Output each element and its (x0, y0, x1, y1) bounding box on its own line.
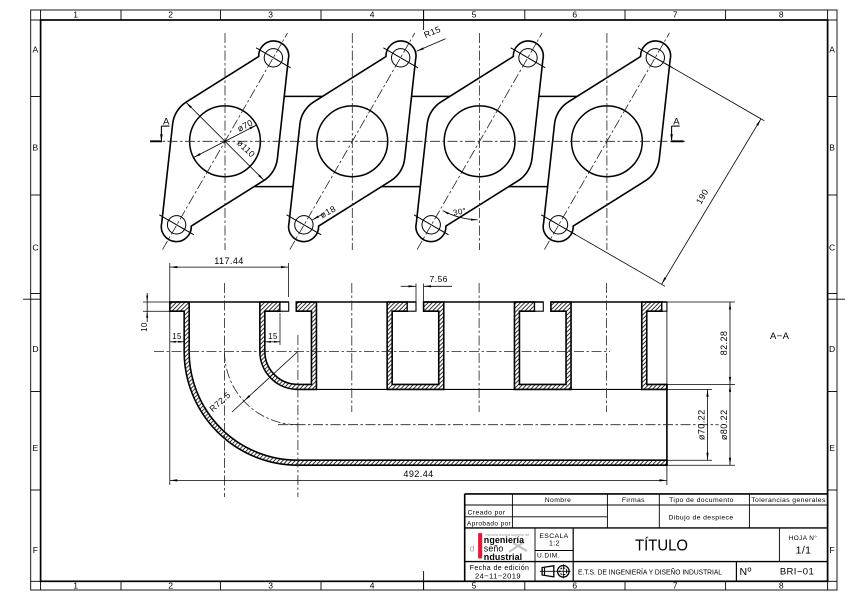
svg-text:117.44: 117.44 (214, 256, 244, 266)
svg-text:F: F (830, 545, 836, 555)
svg-text:1:2: 1:2 (549, 541, 560, 548)
svg-text:82.28: 82.28 (719, 331, 729, 356)
svg-text:ø80.22: ø80.22 (719, 409, 729, 440)
svg-text:8: 8 (779, 580, 784, 590)
svg-text:Creado por: Creado por (468, 509, 506, 516)
svg-text:B: B (33, 143, 39, 153)
svg-text:D: D (32, 344, 39, 354)
svg-text:5: 5 (472, 10, 477, 20)
svg-text:8: 8 (779, 10, 784, 20)
svg-text:492.44: 492.44 (403, 469, 433, 479)
svg-text:U.DIM.: U.DIM. (537, 553, 560, 560)
svg-text:A: A (673, 116, 680, 127)
svg-text:TÍTULO: TÍTULO (635, 538, 688, 555)
svg-text:C: C (829, 243, 836, 253)
svg-text:A: A (829, 45, 835, 55)
svg-text:C: C (32, 243, 39, 253)
svg-text:ø70.22: ø70.22 (696, 409, 706, 440)
svg-text:BRI−01: BRI−01 (780, 567, 814, 578)
svg-text:6: 6 (572, 10, 577, 20)
svg-text:6: 6 (572, 580, 577, 590)
svg-text:d: d (470, 544, 475, 554)
svg-text:15: 15 (268, 332, 278, 341)
svg-text:A: A (163, 116, 170, 127)
svg-text:2: 2 (168, 580, 173, 590)
svg-text:7: 7 (673, 10, 678, 20)
svg-text:E: E (829, 443, 835, 453)
svg-text:1/1: 1/1 (796, 545, 812, 557)
svg-text:Firmas: Firmas (622, 497, 645, 504)
svg-text:Tipo de documento: Tipo de documento (669, 497, 734, 504)
svg-text:ESCALA: ESCALA (539, 533, 568, 540)
svg-text:7.56: 7.56 (430, 274, 448, 284)
svg-text:HOJA N°: HOJA N° (789, 534, 817, 542)
svg-text:B: B (829, 143, 835, 153)
svg-text:Tolerancias generales: Tolerancias generales (751, 497, 826, 504)
svg-text:F: F (33, 545, 39, 555)
svg-text:Nombre: Nombre (545, 497, 572, 504)
svg-text:E.T.S. DE INGENIERÍA Y DISEÑO: E.T.S. DE INGENIERÍA Y DISEÑO INDUSTRIAL (578, 567, 722, 576)
svg-text:4: 4 (370, 10, 375, 20)
svg-text:Dibujo de despiece: Dibujo de despiece (668, 515, 733, 522)
svg-text:Nº: Nº (740, 566, 752, 578)
svg-text:A: A (33, 45, 39, 55)
svg-text:3: 3 (268, 10, 273, 20)
svg-text:7: 7 (673, 580, 678, 590)
svg-text:E: E (33, 443, 39, 453)
svg-text:D: D (829, 344, 836, 354)
svg-text:24−11−2019: 24−11−2019 (475, 571, 521, 580)
svg-text:2: 2 (168, 10, 173, 20)
svg-text:3: 3 (268, 580, 273, 590)
svg-text:1: 1 (73, 580, 78, 590)
svg-text:A−A: A−A (770, 331, 790, 342)
svg-text:Aprobado por: Aprobado por (467, 520, 512, 527)
svg-text:15: 15 (172, 332, 182, 341)
svg-text:4: 4 (370, 580, 375, 590)
svg-text:5: 5 (472, 580, 477, 590)
svg-text:ndustrial: ndustrial (484, 552, 522, 562)
svg-text:1: 1 (73, 10, 78, 20)
svg-text:10: 10 (140, 322, 149, 332)
